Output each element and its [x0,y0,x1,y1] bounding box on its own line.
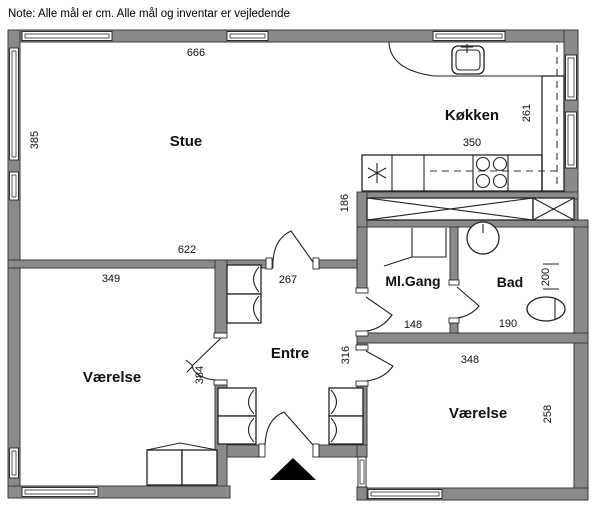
room-label-entre: Entre [271,345,309,362]
window-bottom-right [368,490,442,499]
jamb [449,280,459,285]
wall-storage-end [357,192,367,227]
door-entre-mlgang [366,297,392,331]
jamb [313,258,319,269]
window-top-kitchen [433,32,505,41]
jamb [449,318,459,323]
counter-bottom [362,155,542,191]
washbasin-icon [467,222,499,254]
window-left-3 [10,448,19,478]
jamb [259,444,265,457]
jamb [356,331,368,336]
dim-384: 384 [194,366,206,384]
wall-leftroom-east-upper [215,260,227,333]
window-right-kitchen-2 [566,112,577,168]
jamb [356,288,368,293]
jamb [214,380,227,385]
dim-190: 190 [499,318,517,330]
floor-plan: Note: Alle mål er cm. Alle mål og invent… [0,0,600,509]
wall-bad-west-lower [450,323,458,333]
jamb [313,444,319,457]
plan-note: Note: Alle mål er cm. Alle mål og invent… [8,8,290,20]
toilet-icon [527,297,565,321]
dim-148: 148 [404,319,422,331]
room-label-vaerelse-right: Værelse [449,405,507,422]
dim-200: 200 [540,268,552,286]
jamb [266,258,272,269]
jamb [214,333,227,338]
room-label-kokken: Køkken [445,107,499,124]
mlgang-cabinet [384,228,446,266]
walls [8,30,588,500]
dim-316: 316 [340,346,352,364]
wardrobe-vaerelse-left [147,443,217,485]
counter-dividers [392,155,508,191]
closet-entrance-left [218,388,256,444]
dim-348: 348 [461,354,479,366]
counter-right [542,76,564,191]
dim-622: 622 [178,244,196,256]
room-label-vaerelse-left: Værelse [83,369,141,386]
dim-385: 385 [29,131,41,149]
dim-350: 350 [463,137,481,149]
closet-entre-west [227,265,261,323]
wall-bad-west-upper [450,227,458,280]
storage-unit-2 [533,198,574,220]
dim-666: 666 [187,47,205,59]
kitchen-sink-icon [452,44,484,74]
closet-entrance-right [329,388,363,444]
wall-mlgang-west-upper [357,227,367,288]
wall-right-lower [574,220,588,500]
dim-267: 267 [279,274,297,286]
dim-186: 186 [339,194,351,212]
storage-strip [367,198,574,220]
window-bottom-left [22,488,98,497]
wall-bad-south [357,333,588,343]
dim-258: 258 [542,405,554,423]
stove-icon [477,158,507,188]
bathroom-fittings [384,222,565,321]
window-top-2 [227,32,268,41]
window-porch [358,457,366,487]
jamb [356,345,368,350]
window-right-kitchen-1 [566,55,577,100]
wall-porch-top [357,445,367,457]
room-label-bad: Bad [497,274,523,290]
window-top-1 [22,32,112,41]
entrance-arrow-icon [270,458,316,480]
wall-porch-bottom [357,487,367,500]
dim-349: 349 [102,273,120,285]
room-label-mlgang: Ml.Gang [385,273,440,289]
dim-261: 261 [521,104,533,122]
room-label-stue: Stue [170,133,203,150]
window-left-1 [10,48,19,160]
door-stue-entre [273,231,313,262]
window-left-2 [10,172,19,200]
floor-plan-drawing: Note: Alle mål er cm. Alle mål og invent… [0,0,600,509]
dishwasher-icon [368,163,386,183]
door-entrance [265,412,313,445]
jamb [356,381,368,386]
door-mlgang-bad [457,287,479,318]
door-entre-vaerelse-right [366,351,393,381]
wall-entrance-right [319,445,360,457]
storage-unit-1 [367,198,533,220]
